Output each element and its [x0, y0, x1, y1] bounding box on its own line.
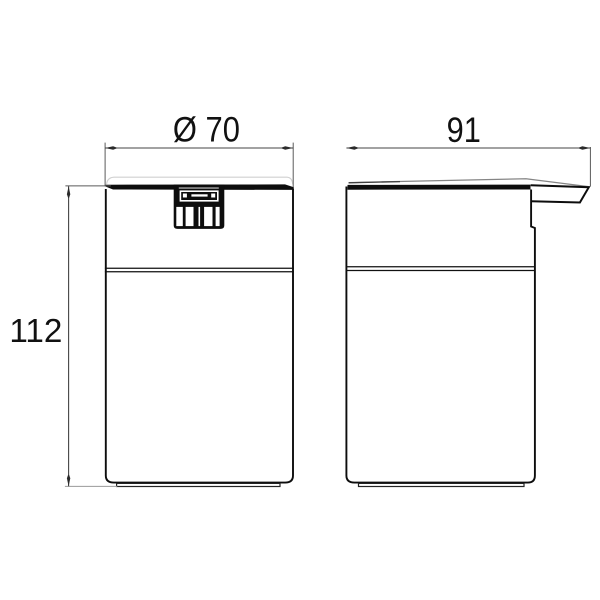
- svg-text:Ø 70: Ø 70: [173, 111, 240, 150]
- svg-text:91: 91: [447, 111, 481, 150]
- svg-text:112: 112: [9, 312, 62, 349]
